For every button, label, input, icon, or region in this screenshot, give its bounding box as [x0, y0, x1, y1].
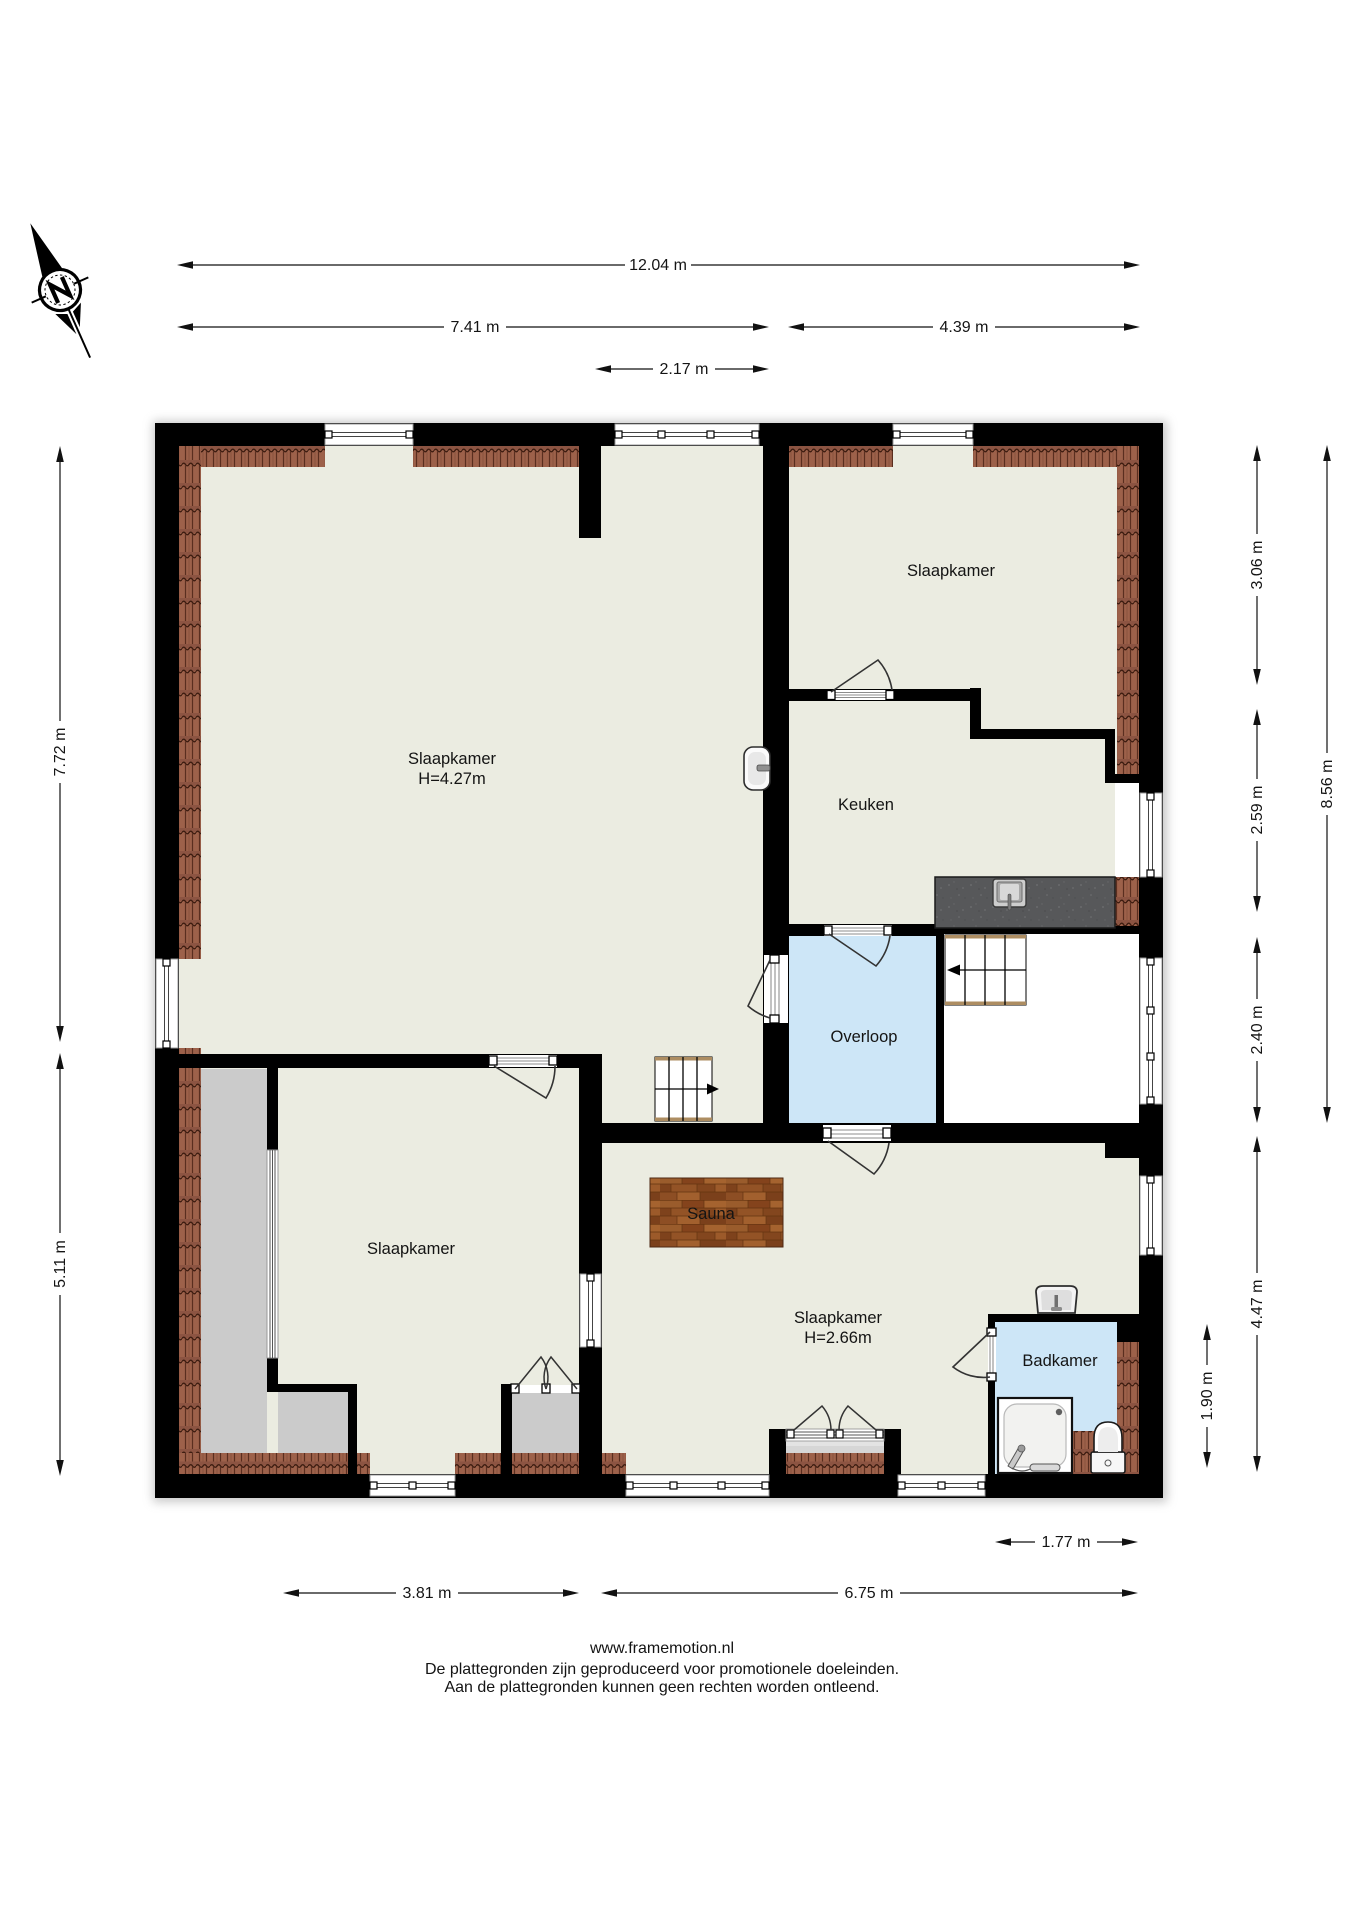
- svg-text:2.59 m: 2.59 m: [1249, 786, 1266, 835]
- svg-text:Keuken: Keuken: [838, 796, 894, 814]
- svg-text:Aan de plattegronden kunnen ge: Aan de plattegronden kunnen geen rechten…: [444, 1679, 879, 1696]
- svg-text:2.17 m: 2.17 m: [660, 361, 709, 378]
- svg-text:6.75 m: 6.75 m: [845, 1585, 894, 1602]
- svg-text:Slaapkamer: Slaapkamer: [907, 562, 996, 580]
- svg-text:5.11 m: 5.11 m: [52, 1240, 69, 1288]
- svg-text:12.04 m: 12.04 m: [629, 257, 687, 274]
- svg-text:H=4.27m: H=4.27m: [418, 770, 485, 788]
- svg-text:7.41 m: 7.41 m: [451, 319, 500, 336]
- svg-text:2.40 m: 2.40 m: [1249, 1006, 1266, 1055]
- svg-text:8.56 m: 8.56 m: [1319, 760, 1336, 809]
- svg-text:Slaapkamer: Slaapkamer: [408, 750, 497, 768]
- svg-text:Sauna: Sauna: [687, 1205, 736, 1223]
- svg-text:Slaapkamer: Slaapkamer: [794, 1309, 883, 1327]
- svg-text:3.81 m: 3.81 m: [403, 1585, 452, 1602]
- svg-text:www.framemotion.nl: www.framemotion.nl: [589, 1640, 734, 1657]
- svg-text:Badkamer: Badkamer: [1022, 1352, 1098, 1370]
- svg-text:1.90 m: 1.90 m: [1199, 1372, 1216, 1421]
- svg-text:3.06 m: 3.06 m: [1249, 541, 1266, 590]
- svg-text:4.47 m: 4.47 m: [1249, 1280, 1266, 1329]
- svg-text:7.72 m: 7.72 m: [52, 728, 69, 777]
- svg-text:Slaapkamer: Slaapkamer: [367, 1240, 456, 1258]
- svg-text:4.39 m: 4.39 m: [940, 319, 989, 336]
- svg-text:De plattegronden zijn geproduc: De plattegronden zijn geproduceerd voor …: [425, 1661, 899, 1678]
- svg-text:Overloop: Overloop: [831, 1028, 898, 1046]
- svg-text:1.77 m: 1.77 m: [1042, 1534, 1091, 1551]
- svg-text:H=2.66m: H=2.66m: [804, 1329, 871, 1347]
